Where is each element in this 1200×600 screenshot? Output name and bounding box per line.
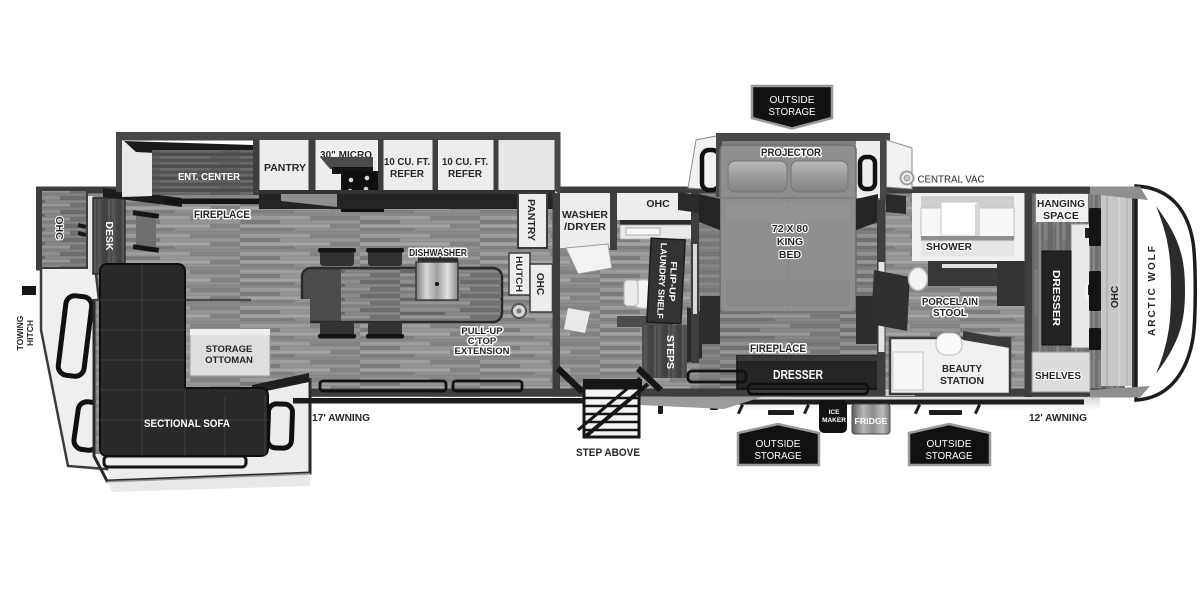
svg-text:WASHER/DRYER: WASHER/DRYER	[562, 209, 608, 233]
svg-text:DRESSER: DRESSER	[1050, 270, 1062, 326]
svg-text:10 CU. FT.REFER: 10 CU. FT.REFER	[442, 156, 488, 180]
svg-text:SHELVES: SHELVES	[1035, 370, 1081, 382]
svg-text:SECTIONAL SOFA: SECTIONAL SOFA	[144, 418, 230, 430]
svg-text:ENT. CENTER: ENT. CENTER	[178, 171, 240, 183]
svg-text:HUTCH: HUTCH	[514, 256, 524, 292]
svg-text:DRESSER: DRESSER	[773, 367, 823, 382]
svg-text:17' AWNING: 17' AWNING	[312, 412, 370, 424]
svg-text:SHOWER: SHOWER	[926, 241, 972, 253]
svg-text:OHC: OHC	[534, 273, 545, 295]
svg-text:TOWINGHITCH: TOWINGHITCH	[15, 315, 35, 350]
svg-text:PANTRY: PANTRY	[264, 162, 306, 174]
svg-text:DISHWASHER: DISHWASHER	[409, 247, 467, 259]
svg-text:BEAUTYSTATION: BEAUTYSTATION	[940, 364, 984, 387]
svg-text:STEP ABOVE: STEP ABOVE	[576, 447, 640, 459]
svg-text:PROJECTOR: PROJECTOR	[761, 147, 821, 159]
svg-text:HANGINGSPACE: HANGINGSPACE	[1037, 198, 1085, 222]
svg-text:12' AWNING: 12' AWNING	[1029, 412, 1087, 424]
svg-text:OHC: OHC	[1110, 286, 1121, 308]
svg-text:10 CU. FT.REFER: 10 CU. FT.REFER	[384, 156, 430, 180]
svg-text:PANTRY: PANTRY	[525, 199, 536, 241]
svg-text:OUTSIDESTORAGE: OUTSIDESTORAGE	[769, 94, 816, 118]
svg-text:DESK: DESK	[103, 221, 115, 251]
svg-text:STEPS: STEPS	[664, 335, 675, 369]
svg-text:OUTSIDESTORAGE: OUTSIDESTORAGE	[755, 438, 802, 462]
svg-text:CENTRAL VAC: CENTRAL VAC	[918, 174, 985, 186]
svg-text:OUTSIDESTORAGE: OUTSIDESTORAGE	[926, 438, 973, 462]
svg-text:OHC: OHC	[53, 216, 65, 240]
svg-text:FIREPLACE: FIREPLACE	[194, 209, 250, 221]
svg-text:STORAGEOTTOMAN: STORAGEOTTOMAN	[205, 344, 253, 366]
svg-text:FRIDGE: FRIDGE	[855, 416, 888, 426]
svg-text:FIREPLACE: FIREPLACE	[750, 343, 806, 355]
svg-text:ARCTIC WOLF: ARCTIC WOLF	[1147, 244, 1158, 336]
svg-text:OHC: OHC	[646, 198, 670, 210]
